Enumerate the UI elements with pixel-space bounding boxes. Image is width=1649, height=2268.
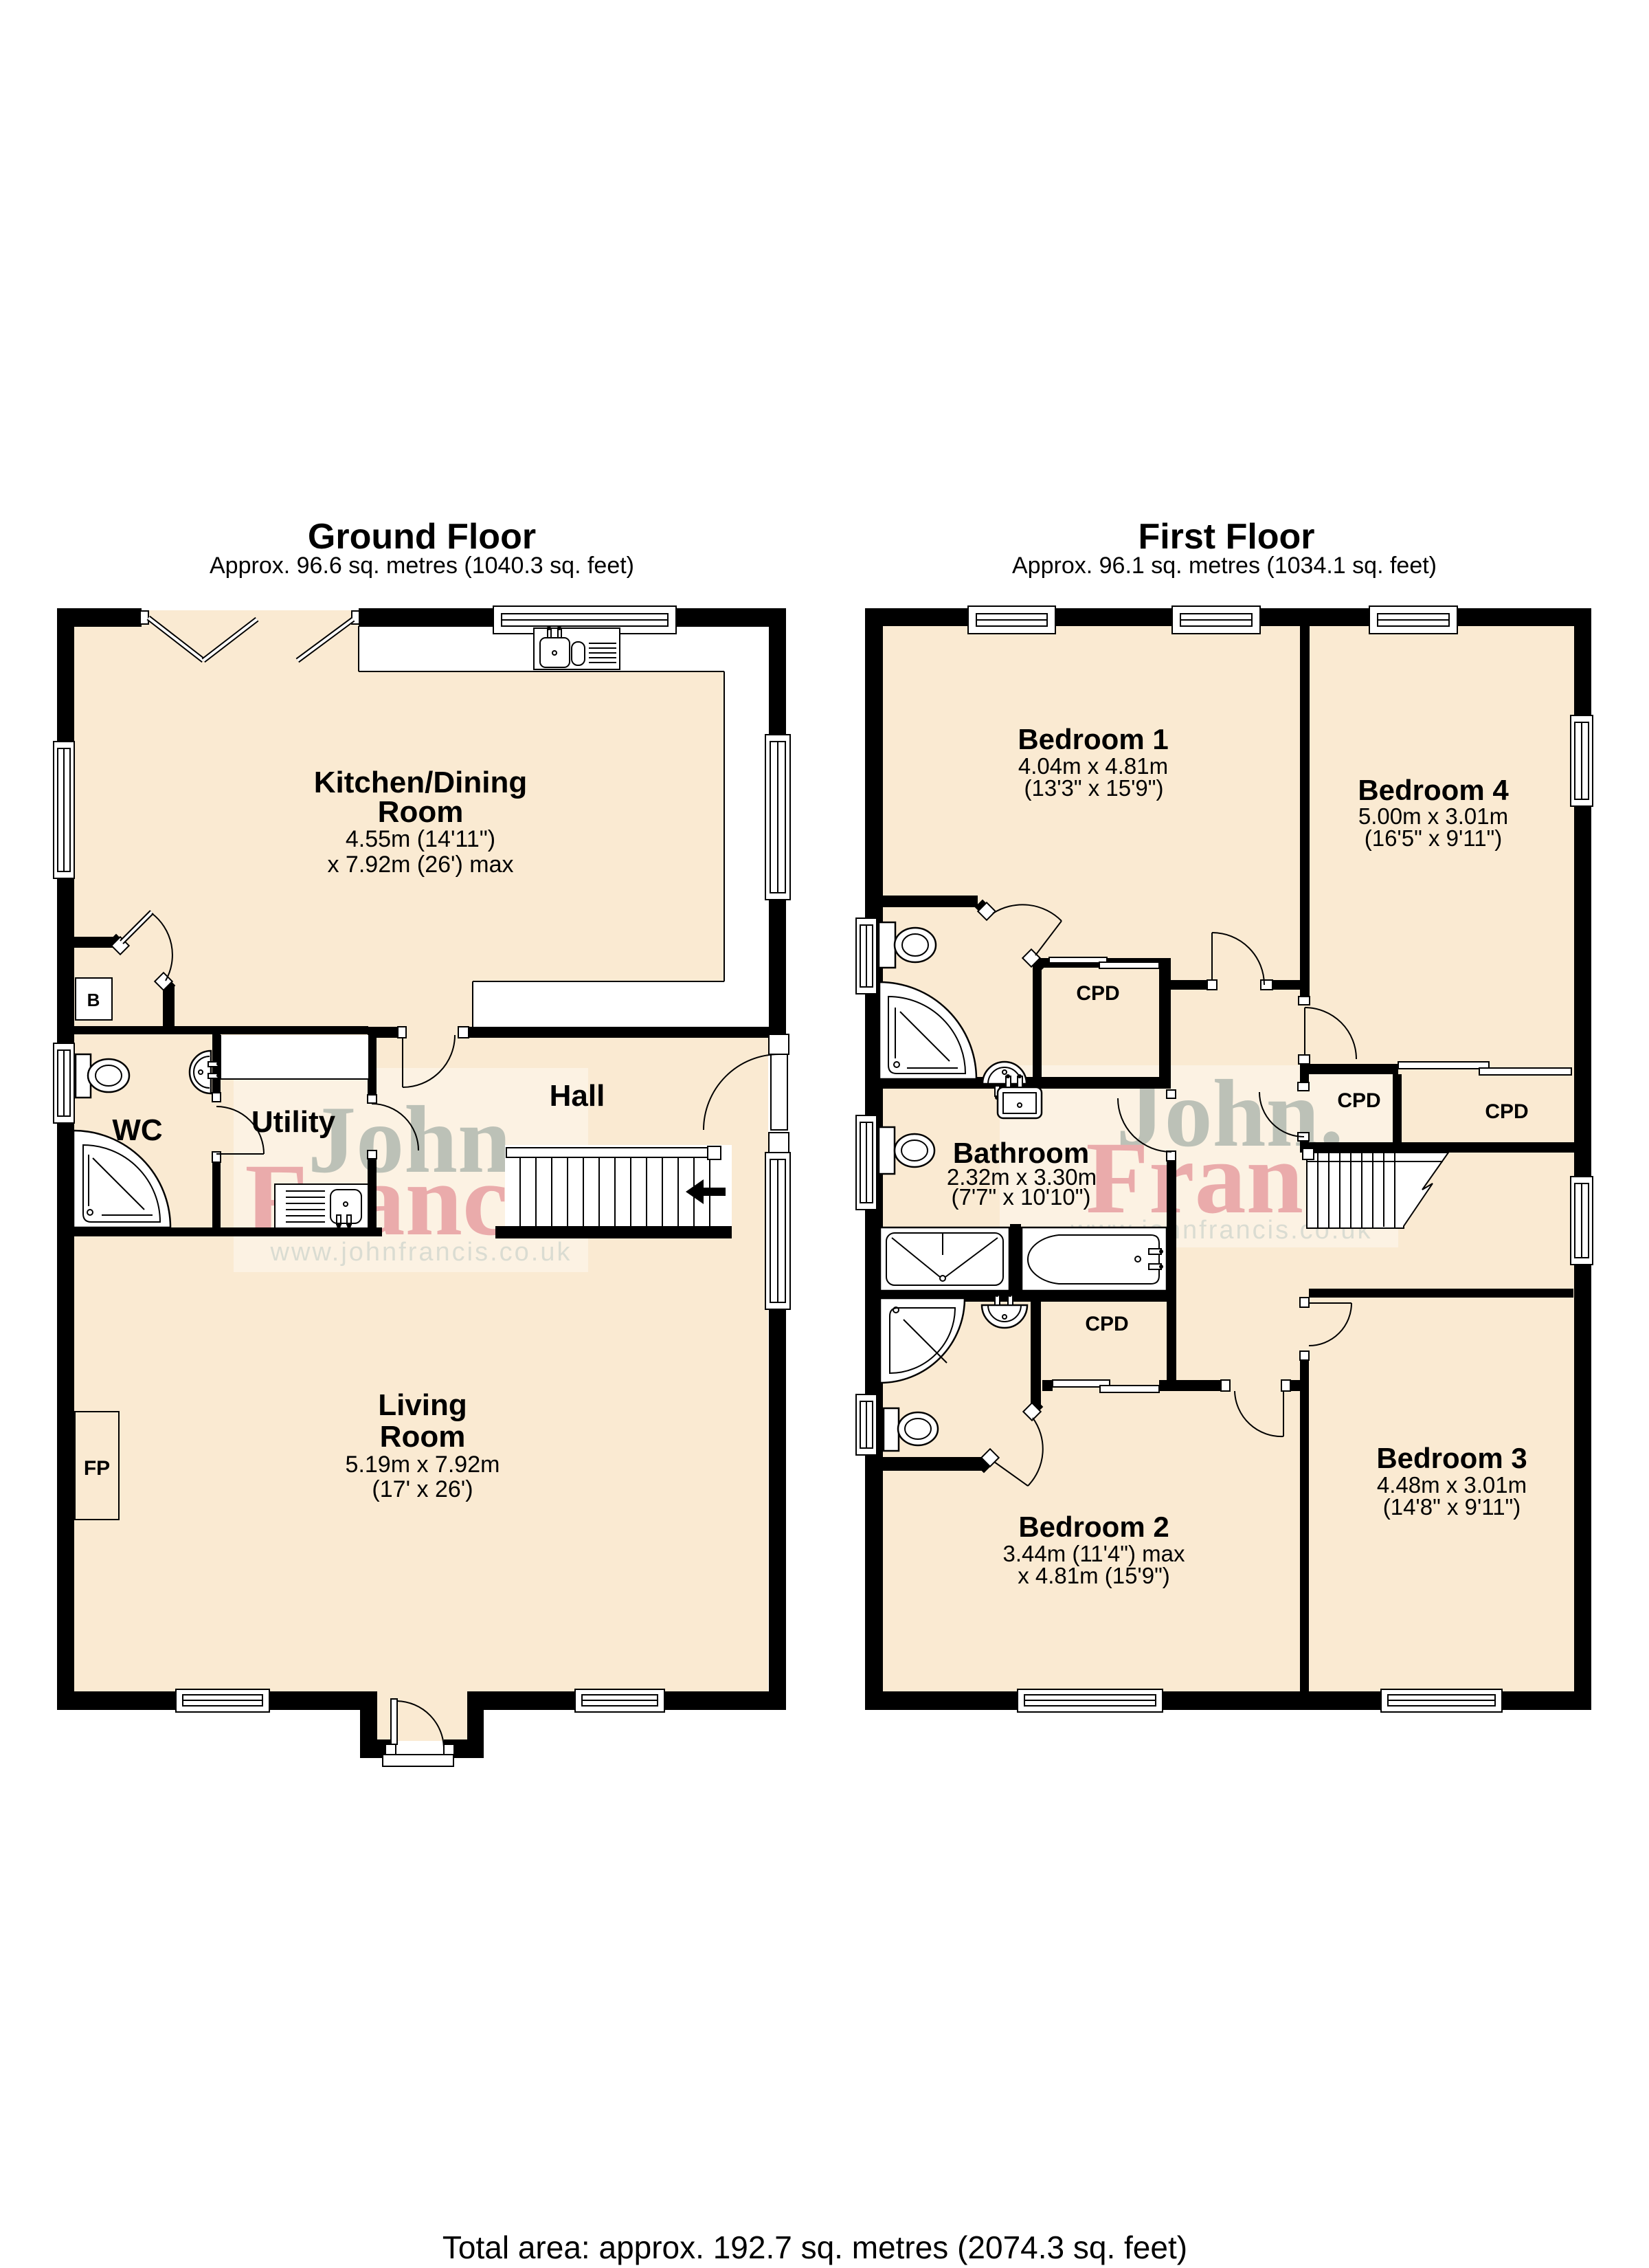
svg-text:B: B	[87, 990, 100, 1010]
svg-text:CPD: CPD	[1485, 1100, 1528, 1123]
svg-text:x 4.81m (15'9"): x 4.81m (15'9")	[1018, 1563, 1170, 1588]
svg-text:Bedroom 2: Bedroom 2	[1018, 1511, 1169, 1543]
svg-text:Bedroom 1: Bedroom 1	[1018, 723, 1168, 755]
svg-text:WC: WC	[112, 1113, 162, 1147]
svg-text:Ground Floor: Ground Floor	[308, 517, 536, 557]
svg-text:Approx. 96.6 sq. metres (1040.: Approx. 96.6 sq. metres (1040.3 sq. feet…	[210, 553, 634, 579]
svg-text:Bedroom 4: Bedroom 4	[1358, 774, 1509, 806]
svg-text:(14'8" x 9'11"): (14'8" x 9'11")	[1383, 1494, 1521, 1520]
svg-text:CPD: CPD	[1076, 982, 1119, 1005]
svg-text:CPD: CPD	[1085, 1313, 1128, 1335]
svg-text:x 7.92m (26') max: x 7.92m (26') max	[327, 852, 513, 878]
svg-text:Kitchen/Dining: Kitchen/Dining	[314, 766, 527, 799]
svg-text:(13'3" x 15'9"): (13'3" x 15'9")	[1024, 775, 1164, 801]
svg-text:Approx. 96.1 sq. metres (1034.: Approx. 96.1 sq. metres (1034.1 sq. feet…	[1012, 553, 1437, 579]
svg-text:Utility: Utility	[251, 1105, 336, 1139]
svg-text:Room: Room	[378, 795, 464, 829]
svg-text:Living: Living	[378, 1388, 467, 1422]
svg-text:(16'5" x 9'11"): (16'5" x 9'11")	[1365, 825, 1503, 851]
svg-text:4.55m (14'11"): 4.55m (14'11")	[346, 826, 495, 852]
svg-text:5.19m x 7.92m: 5.19m x 7.92m	[346, 1452, 500, 1478]
svg-text:www.johnfrancis.co.uk: www.johnfrancis.co.uk	[270, 1238, 572, 1267]
svg-text:Hall: Hall	[550, 1079, 605, 1113]
svg-text:First Floor: First Floor	[1138, 517, 1314, 557]
svg-text:FP: FP	[84, 1457, 110, 1480]
svg-text:Total area: approx. 192.7 sq.: Total area: approx. 192.7 sq. metres (20…	[442, 2230, 1187, 2265]
svg-text:(7'7" x 10'10"): (7'7" x 10'10")	[952, 1184, 1091, 1210]
svg-text:Bedroom 3: Bedroom 3	[1376, 1442, 1527, 1474]
svg-text:CPD: CPD	[1337, 1089, 1380, 1112]
svg-text:Room: Room	[380, 1420, 466, 1454]
svg-text:(17' x 26'): (17' x 26')	[372, 1476, 473, 1502]
